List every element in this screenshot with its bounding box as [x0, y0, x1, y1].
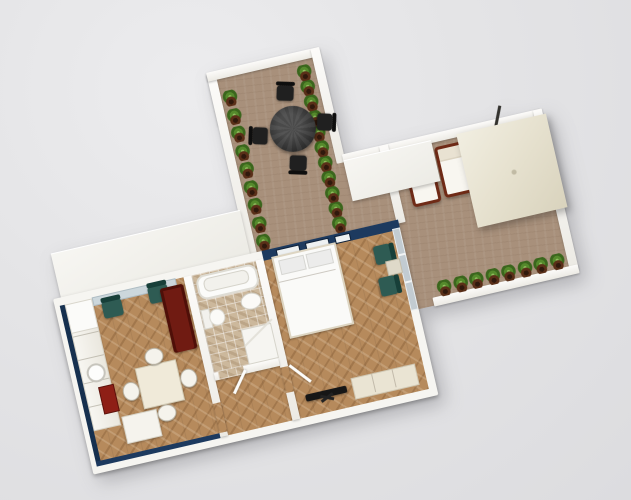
potted-plant[interactable]: [242, 179, 261, 198]
parasol[interactable]: [456, 114, 567, 228]
potted-plant[interactable]: [237, 161, 256, 180]
potted-plant[interactable]: [225, 107, 244, 126]
patio-chair[interactable]: [276, 85, 294, 101]
patio-chair[interactable]: [317, 113, 333, 131]
potted-plant[interactable]: [221, 89, 240, 108]
potted-plant[interactable]: [250, 215, 269, 234]
potted-plant[interactable]: [548, 252, 567, 271]
floor-plan: [0, 0, 631, 500]
floor-plan-canvas: [0, 0, 631, 500]
patio-chair[interactable]: [252, 127, 268, 145]
potted-plant[interactable]: [229, 125, 248, 144]
potted-plant[interactable]: [246, 197, 265, 216]
teal-chair[interactable]: [378, 275, 399, 297]
potted-plant[interactable]: [233, 143, 252, 162]
patio-chair[interactable]: [289, 155, 307, 171]
